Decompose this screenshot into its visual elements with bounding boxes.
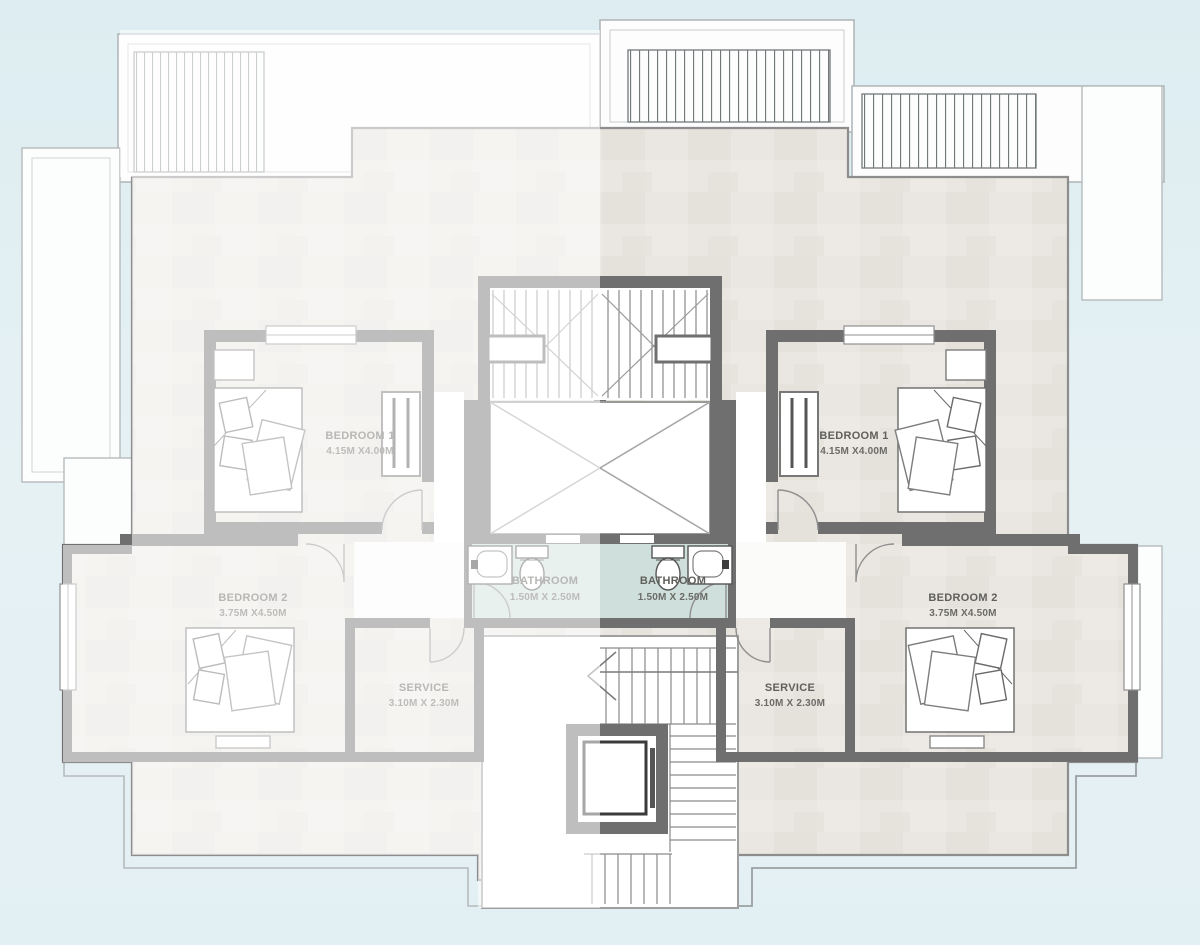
label-right-bathroom-dims: 1.50M X 2.50M: [638, 592, 708, 603]
label-right-bedroom1: BEDROOM 1: [819, 430, 888, 442]
corridor-floor: [736, 392, 766, 542]
terrace-far-left: [22, 148, 120, 482]
hall-floor: [736, 542, 846, 618]
threshold: [620, 535, 654, 543]
floor-plan-svg: BEDROOM 1 4.15M X4.00M BEDROOM 1 4.15M X…: [0, 0, 1200, 945]
label-right-service-dims: 3.10M X 2.30M: [755, 698, 825, 709]
pergola-slats-icon: [628, 50, 830, 122]
nightstand-icon: [946, 350, 986, 380]
label-right-bedroom1-dims: 4.15M X4.00M: [820, 446, 887, 457]
left-unit-fade-overlay: [63, 30, 600, 908]
double-bed-icon: [906, 628, 1014, 748]
stair-landing: [656, 336, 712, 362]
pergola-slats-icon: [862, 94, 1036, 168]
label-right-bedroom2-dims: 3.75M X4.50M: [929, 608, 996, 619]
terrace-far-right: [1082, 86, 1162, 300]
label-right-service: SERVICE: [765, 682, 815, 694]
bench-icon: [930, 736, 984, 748]
label-right-bathroom: BATHROOM: [640, 575, 706, 587]
label-right-bedroom2: BEDROOM 2: [928, 592, 997, 604]
floor-plan-screenshot: BEDROOM 1 4.15M X4.00M BEDROOM 1 4.15M X…: [0, 0, 1200, 945]
wardrobe-icon: [780, 392, 818, 476]
